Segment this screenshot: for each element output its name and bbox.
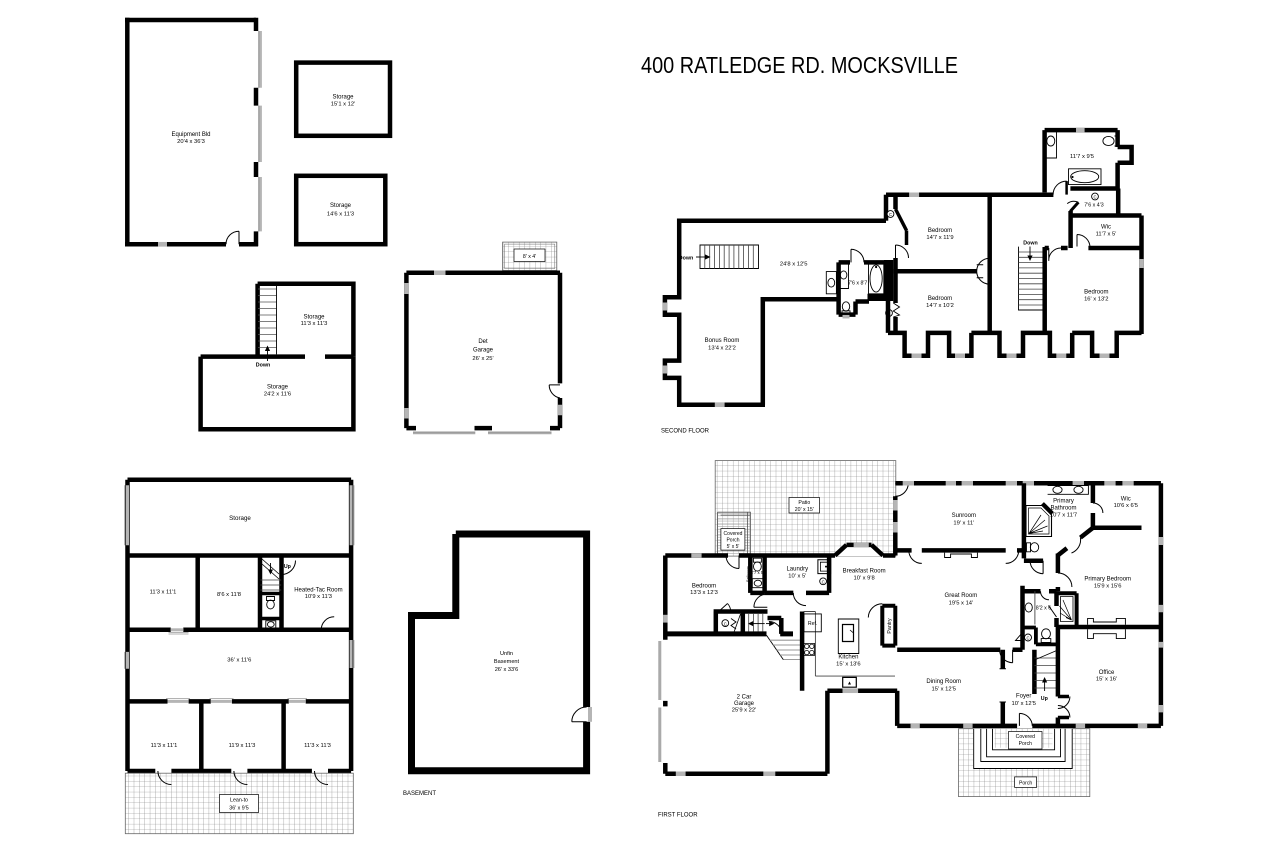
svg-text:26' x 25': 26' x 25' [472,356,493,362]
svg-text:Porch: Porch [1019,741,1032,747]
svg-text:19'5 x 14': 19'5 x 14' [949,600,973,606]
svg-text:10' x 5': 10' x 5' [788,573,806,579]
svg-text:11'3 x 11'1: 11'3 x 11'1 [151,743,178,749]
svg-text:10'7 x 11'7: 10'7 x 11'7 [1050,512,1077,518]
svg-text:11'7 x 9'5: 11'7 x 9'5 [1070,154,1094,160]
svg-text:11'3 x 11'3: 11'3 x 11'3 [301,321,328,327]
svg-text:15'1 x 12': 15'1 x 12' [331,102,355,108]
svg-text:Unfin: Unfin [500,651,513,657]
svg-text:19' x 11': 19' x 11' [953,520,974,526]
svg-text:Bedroom: Bedroom [692,584,716,590]
svg-text:5' x 5': 5' x 5' [727,544,740,550]
svg-text:Lean-to: Lean-to [230,798,248,804]
svg-text:Porch: Porch [726,537,739,543]
svg-text:Porch: Porch [1019,781,1032,787]
svg-text:C: C [724,621,727,626]
svg-text:Up: Up [284,564,292,570]
svg-text:Patio: Patio [798,500,810,506]
svg-text:Equipment Bld: Equipment Bld [171,132,210,138]
svg-text:Storage: Storage [332,94,354,100]
svg-text:Det: Det [478,339,488,345]
svg-text:Bedroom: Bedroom [928,296,952,302]
svg-text:26' x 33'6: 26' x 33'6 [495,667,519,673]
svg-text:20' x 15': 20' x 15' [795,507,814,513]
svg-text:14'7 x 11'9: 14'7 x 11'9 [926,235,953,241]
svg-text:C: C [1093,195,1096,200]
svg-text:36' x 9'5: 36' x 9'5 [229,806,248,812]
svg-text:11'3 x 11'1: 11'3 x 11'1 [150,590,177,596]
svg-text:Covered: Covered [724,531,743,537]
svg-text:14'6 x 11'3: 14'6 x 11'3 [327,211,354,217]
svg-text:11'9 x 11'3: 11'9 x 11'3 [229,743,256,749]
svg-text:SECOND FLOOR: SECOND FLOOR [661,429,710,435]
svg-text:Laundry: Laundry [786,566,808,572]
svg-text:Garage: Garage [473,348,494,354]
svg-text:10'9 x 11'3: 10'9 x 11'3 [305,594,332,600]
svg-text:15' x 13'6: 15' x 13'6 [836,661,860,667]
svg-text:8'6 x 11'8: 8'6 x 11'8 [217,592,241,598]
svg-text:FIRST FLOOR: FIRST FLOOR [658,813,698,819]
svg-text:Storage: Storage [267,385,289,391]
svg-text:Bedroom: Bedroom [1084,289,1108,295]
svg-text:25'9 x 22': 25'9 x 22' [732,708,756,714]
svg-text:Primary: Primary [1053,499,1074,505]
svg-text:15'9 x 15'6: 15'9 x 15'6 [1094,583,1122,589]
svg-text:Breakfast Room: Breakfast Room [843,569,886,575]
svg-text:Great Room: Great Room [945,593,978,599]
svg-text:20'4 x 36'3: 20'4 x 36'3 [177,139,205,145]
svg-text:13'4 x 22'2: 13'4 x 22'2 [708,346,736,352]
svg-text:Sunroom: Sunroom [952,513,976,519]
svg-text:Bathroom: Bathroom [1050,506,1076,512]
svg-text:Bathroom: Bathroom [746,566,750,582]
svg-text:Up: Up [1041,696,1049,702]
svg-text:10'6 x 6'5: 10'6 x 6'5 [1114,503,1138,509]
svg-text:Ref.: Ref. [808,621,818,627]
svg-text:8' x 4': 8' x 4' [523,254,536,260]
svg-text:7'6 x 4'3: 7'6 x 4'3 [1084,203,1103,209]
svg-text:Office: Office [1099,670,1115,676]
svg-text:Wic: Wic [1101,225,1111,231]
svg-text:11'3 x 11'3: 11'3 x 11'3 [304,743,331,749]
svg-text:Basement: Basement [494,659,520,665]
svg-text:10' x 12'5: 10' x 12'5 [1011,701,1035,707]
svg-text:Heated-Tac Room: Heated-Tac Room [294,587,342,593]
svg-text:Storage: Storage [330,203,352,209]
svg-text:13'3 x 12'3: 13'3 x 12'3 [690,590,718,596]
svg-text:Bedroom: Bedroom [928,228,952,234]
svg-text:Primary Bedroom: Primary Bedroom [1084,577,1131,583]
svg-text:2 Car: 2 Car [737,695,752,701]
svg-text:Dining Room: Dining Room [926,679,961,685]
svg-text:Storage: Storage [229,515,251,522]
svg-text:10' x 9'8: 10' x 9'8 [853,576,874,582]
svg-text:Pantry: Pantry [887,618,893,634]
svg-text:Garage: Garage [734,701,755,707]
svg-text:11'7 x 5': 11'7 x 5' [1096,232,1117,238]
svg-text:400 RATLEDGE RD. MOCKSVILLE: 400 RATLEDGE RD. MOCKSVILLE [641,52,958,78]
svg-text:C: C [1026,636,1029,641]
svg-text:Storage: Storage [303,315,325,321]
svg-text:Down: Down [256,363,270,369]
svg-text:15' x 12'5: 15' x 12'5 [931,687,955,693]
svg-text:Foyer: Foyer [1016,693,1031,699]
svg-text:24'2 x 11'6: 24'2 x 11'6 [264,392,291,398]
svg-text:7'6 x 8'7: 7'6 x 8'7 [848,281,867,287]
svg-text:Kitchen: Kitchen [838,655,858,661]
svg-text:Bonus Room: Bonus Room [705,338,740,344]
svg-text:14'7 x 10'2: 14'7 x 10'2 [926,303,954,309]
svg-text:24'8 x 12'5: 24'8 x 12'5 [780,262,808,268]
svg-text:Covered: Covered [1016,734,1035,740]
svg-text:Down: Down [679,256,693,262]
svg-text:36' x 11'6: 36' x 11'6 [227,658,251,664]
svg-text:Down: Down [1023,241,1037,247]
svg-text:16' x 13'2: 16' x 13'2 [1084,296,1108,302]
svg-text:BASEMENT: BASEMENT [403,791,436,797]
svg-text:Wic: Wic [1121,496,1131,502]
svg-text:C: C [889,212,892,217]
svg-text:2'7 x 5': 2'7 x 5' [751,570,765,575]
svg-text:15' x 16': 15' x 16' [1096,677,1117,683]
svg-text:C: C [822,580,825,585]
